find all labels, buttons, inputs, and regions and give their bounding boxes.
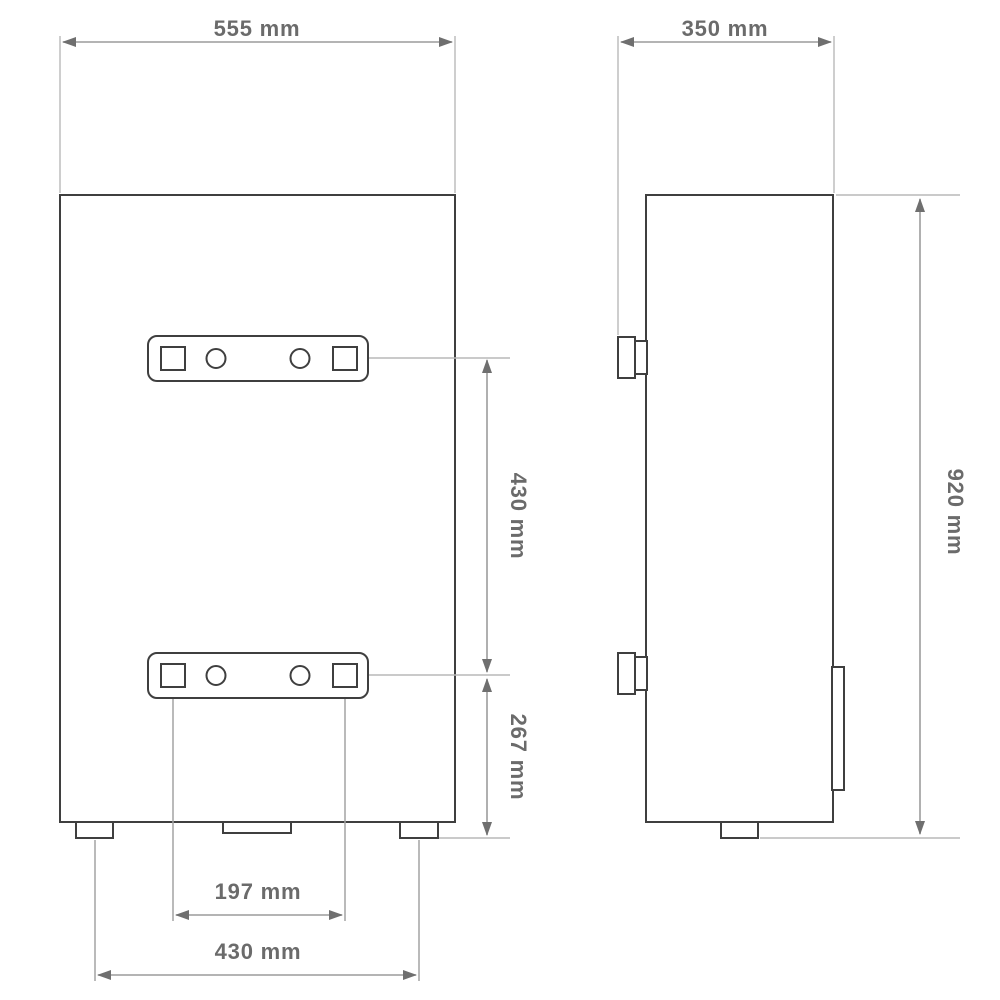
dim-label-feet-spacing: 430 mm xyxy=(215,939,302,964)
dim-front-width: 555 mm xyxy=(60,16,455,193)
front-foot-right xyxy=(400,822,438,838)
front-body-outline xyxy=(60,195,455,822)
front-view xyxy=(60,195,455,822)
technical-drawing-page: 555 mm 430 mm 267 mm 197 mm 430 mm xyxy=(0,0,1000,1000)
mounting-hole-square-left xyxy=(161,664,185,687)
side-panel-strip xyxy=(832,667,844,790)
side-body-outline xyxy=(646,195,833,822)
dim-label-front-width: 555 mm xyxy=(214,16,301,41)
side-bracket-lower xyxy=(618,653,647,694)
mounting-hole-round-left xyxy=(207,666,226,685)
dim-label-depth: 350 mm xyxy=(682,16,769,41)
mounting-bracket-lower xyxy=(148,653,368,698)
front-foot-center xyxy=(223,822,291,833)
mounting-hole-round-right xyxy=(291,349,310,368)
mounting-hole-square-right xyxy=(333,664,357,687)
side-bracket-upper xyxy=(618,337,647,378)
front-foot-left xyxy=(76,822,113,838)
dim-label-height: 920 mm xyxy=(943,469,968,556)
dim-label-bracket-spacing-v: 430 mm xyxy=(506,473,531,560)
mounting-hole-round-left xyxy=(207,349,226,368)
side-foot xyxy=(721,822,758,838)
mounting-bracket-upper xyxy=(148,336,368,381)
bracket-back xyxy=(618,337,635,378)
mounting-hole-round-right xyxy=(291,666,310,685)
dim-label-hole-spacing: 197 mm xyxy=(215,879,302,904)
bracket-back xyxy=(618,653,635,694)
dim-feet-spacing: 430 mm xyxy=(95,840,419,981)
dim-label-bracket-to-bottom: 267 mm xyxy=(506,714,531,801)
mounting-hole-square-left xyxy=(161,347,185,370)
dimension-drawing-canvas: 555 mm 430 mm 267 mm 197 mm 430 mm xyxy=(0,0,1000,1000)
side-view xyxy=(618,195,844,838)
mounting-hole-square-right xyxy=(333,347,357,370)
